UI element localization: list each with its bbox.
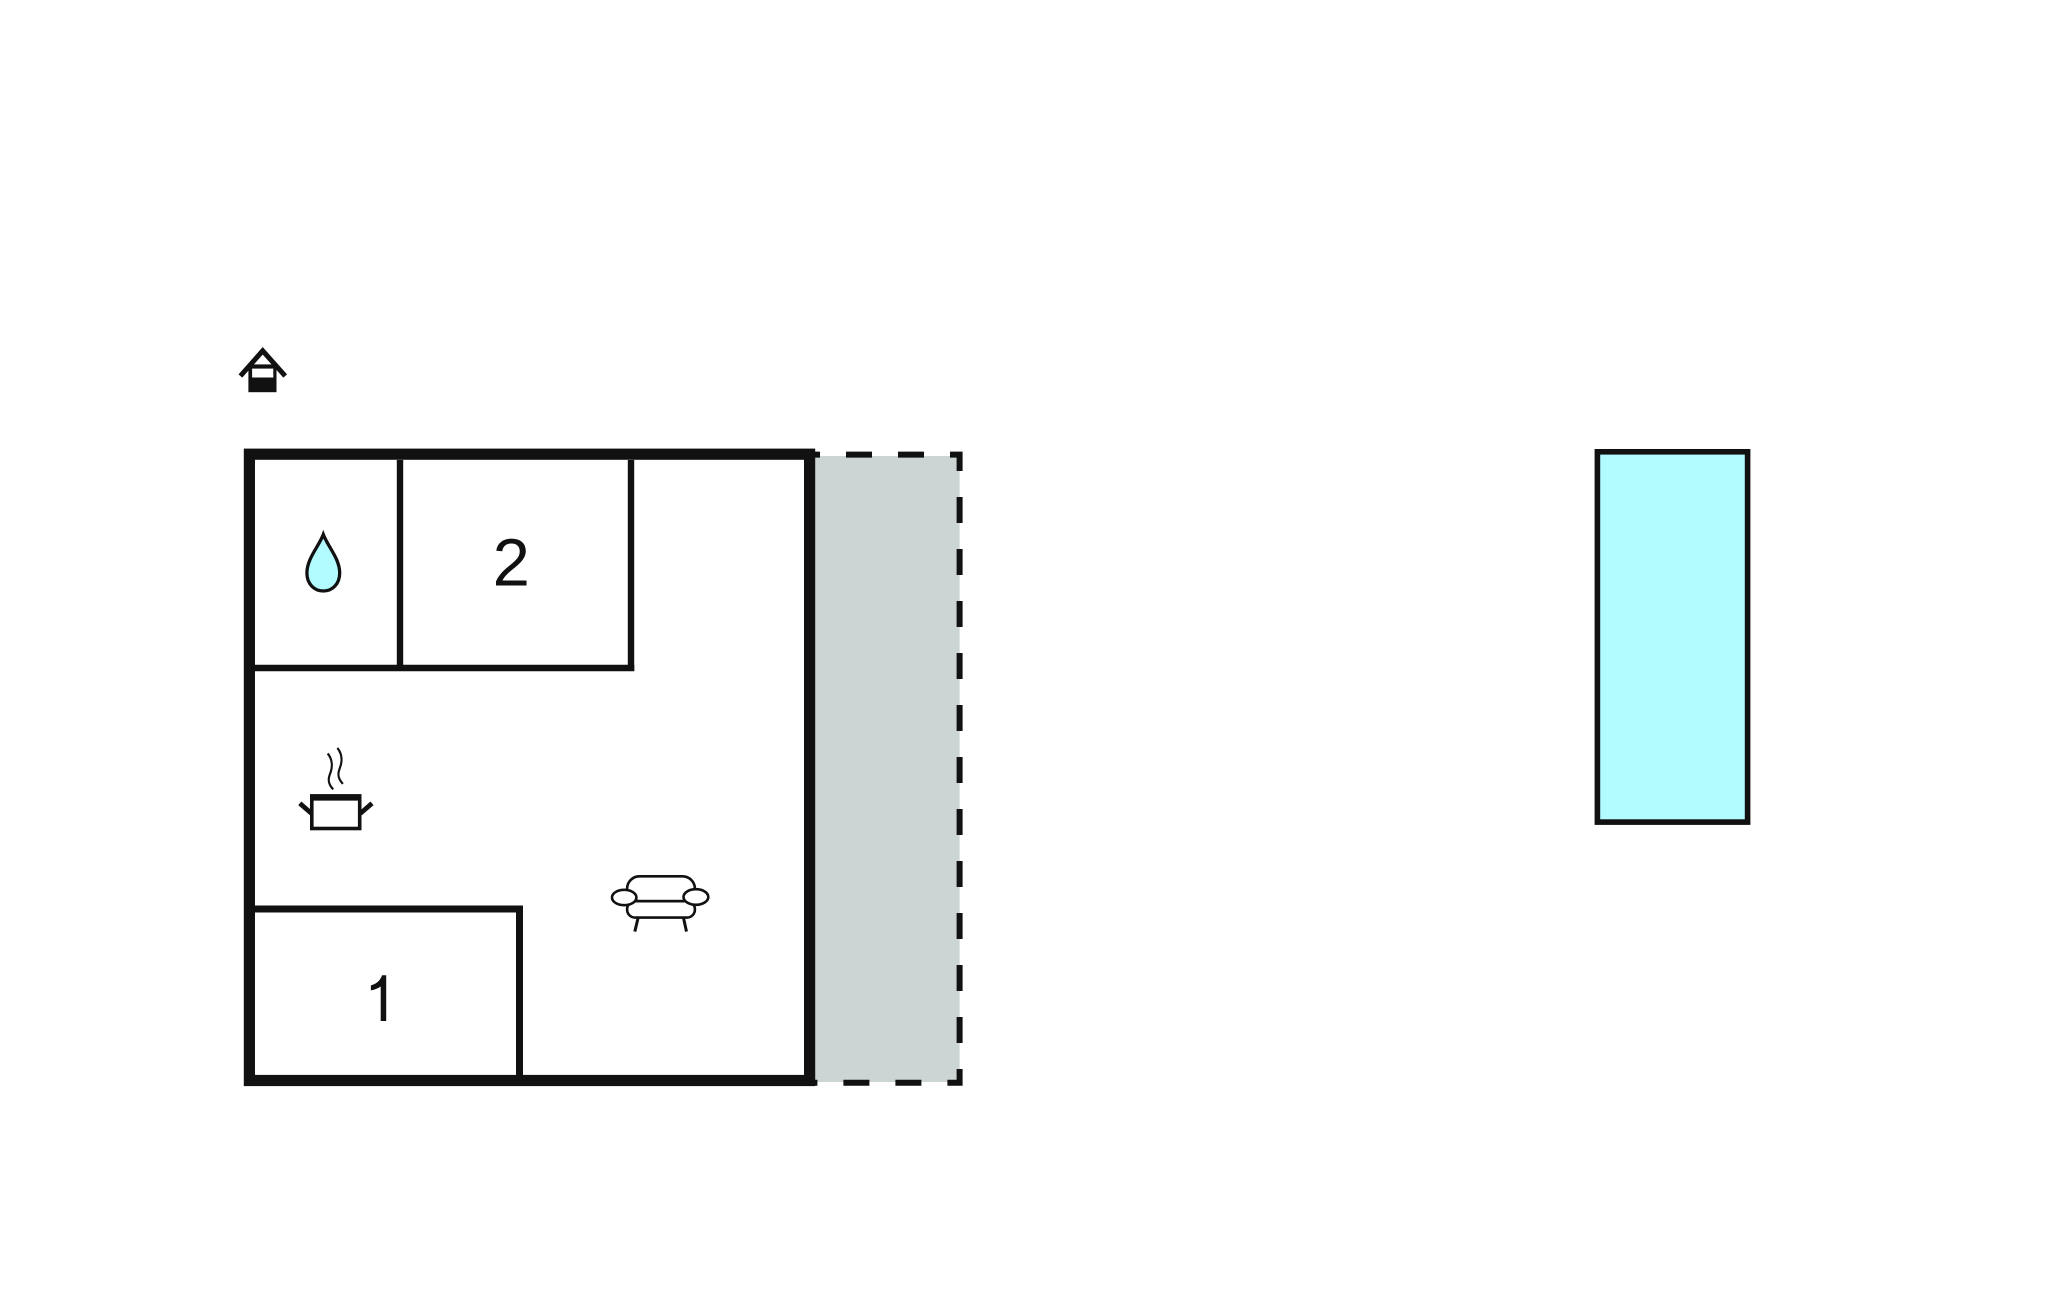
svg-text:2: 2 bbox=[493, 526, 530, 601]
